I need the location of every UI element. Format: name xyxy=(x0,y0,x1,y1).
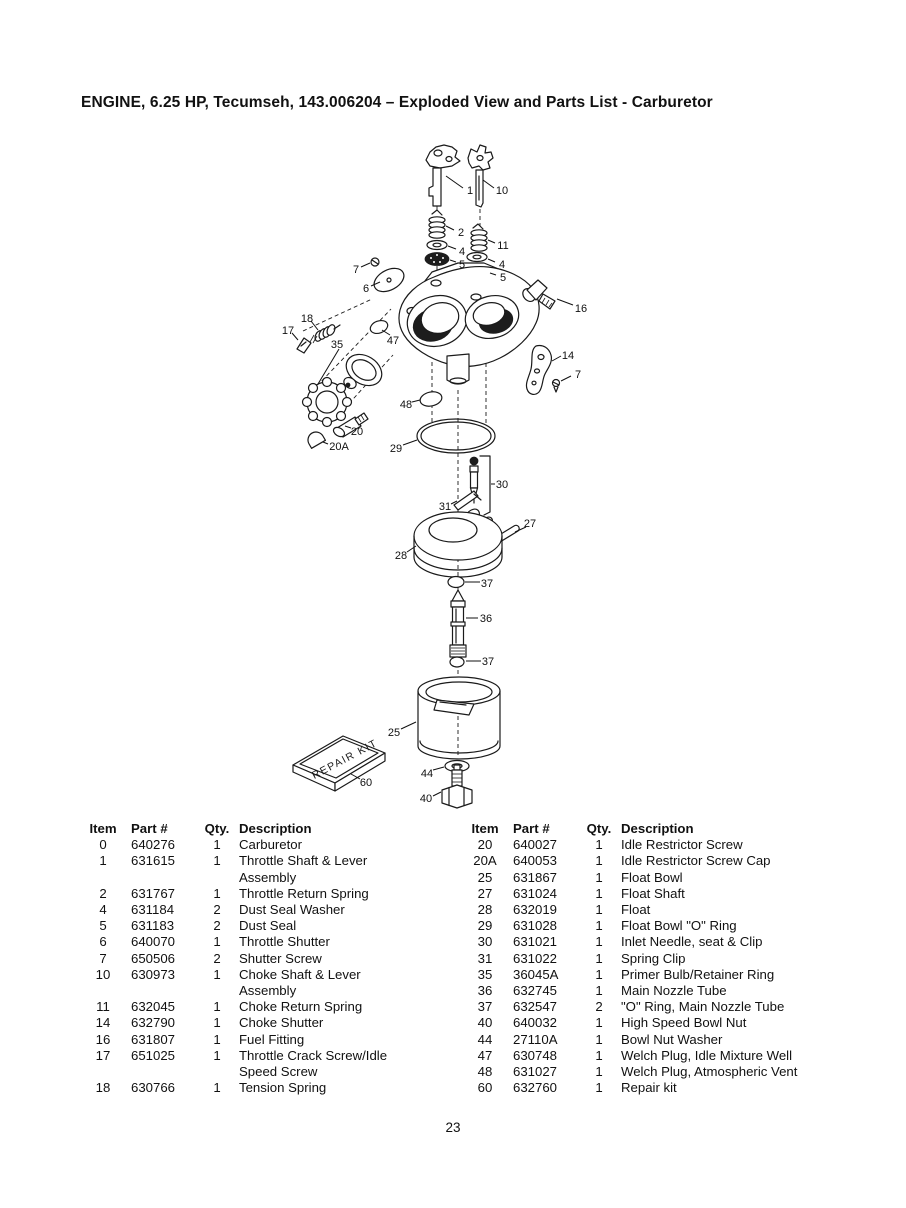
parts-cell-desc: Idle Restrictor Screw xyxy=(619,837,829,853)
parts-cell-desc: Idle Restrictor Screw Cap xyxy=(619,853,829,869)
part-callout-25: 25 xyxy=(388,727,400,739)
parts-cell-part: 36045A xyxy=(507,967,579,983)
part-callout-6: 6 xyxy=(363,283,369,295)
parts-cell-item: 27 xyxy=(463,886,507,902)
part-callout-40: 40 xyxy=(420,793,432,805)
callout-leader-line xyxy=(323,442,328,444)
parts-cell-desc: Tension Spring xyxy=(237,1080,447,1096)
page-title: ENGINE, 6.25 HP, Tecumseh, 143.006204 – … xyxy=(81,94,841,112)
parts-cell-desc: Throttle Shaft & Lever Assembly xyxy=(237,853,447,885)
parts-table-right: Item Part # Qty. Description 206400271Id… xyxy=(463,821,829,1096)
callout-leader-line xyxy=(561,376,571,381)
float-bowl-o-ring-drawing xyxy=(417,419,495,453)
page-number: 23 xyxy=(0,1120,906,1135)
parts-cell-item: 20A xyxy=(463,853,507,869)
parts-cell-qty: 1 xyxy=(579,1048,619,1064)
parts-table-row: 76505062Shutter Screw xyxy=(81,951,447,967)
header-qty: Qty. xyxy=(197,821,237,837)
callout-leader-line xyxy=(488,240,495,243)
parts-cell-qty: 2 xyxy=(197,918,237,934)
parts-cell-desc: High Speed Bowl Nut xyxy=(619,1015,829,1031)
parts-cell-part: 632790 xyxy=(125,1015,197,1031)
parts-table-row: 256318671Float Bowl xyxy=(463,870,829,886)
part-callout-28: 28 xyxy=(395,550,407,562)
parts-cell-qty: 1 xyxy=(197,1080,237,1096)
parts-cell-item: 31 xyxy=(463,951,507,967)
throttle-return-spring-drawing xyxy=(429,210,445,238)
parts-cell-desc: Throttle Return Spring xyxy=(237,886,447,902)
parts-cell-qty: 1 xyxy=(197,1048,237,1080)
parts-cell-desc: Choke Shutter xyxy=(237,1015,447,1031)
part-callout-29: 29 xyxy=(390,443,402,455)
choke-shaft-lever-drawing xyxy=(468,145,493,207)
part-callout-47: 47 xyxy=(387,335,399,347)
parts-table-row: 16316151Throttle Shaft & Lever Assembly xyxy=(81,853,447,885)
choke-shutter-drawing xyxy=(526,345,551,394)
callout-leader-line xyxy=(446,176,463,188)
parts-cell-desc: Choke Shaft & Lever Assembly xyxy=(237,967,447,999)
parts-cell-qty: 1 xyxy=(579,918,619,934)
parts-cell-item: 10 xyxy=(81,967,125,999)
parts-cell-part: 631028 xyxy=(507,918,579,934)
part-callout-35: 35 xyxy=(331,339,343,351)
parts-table-row: 286320191Float xyxy=(463,902,829,918)
spring-clip-drawing xyxy=(454,491,481,510)
parts-table-row: 106309731Choke Shaft & Lever Assembly xyxy=(81,967,447,999)
part-callout-18: 18 xyxy=(301,313,313,325)
parts-cell-qty: 2 xyxy=(197,951,237,967)
header-description: Description xyxy=(237,821,447,837)
shutter-screw-left-drawing xyxy=(371,258,379,266)
dust-seal-washer-left-drawing xyxy=(427,241,447,250)
parts-cell-qty: 1 xyxy=(579,870,619,886)
header-part: Part # xyxy=(507,821,579,837)
parts-cell-part: 631767 xyxy=(125,886,197,902)
callout-leader-line xyxy=(557,299,573,305)
parts-table-row: 26317671Throttle Return Spring xyxy=(81,886,447,902)
primer-bulb-retainer-drawing xyxy=(303,348,388,426)
parts-cell-part: 631807 xyxy=(125,1032,197,1048)
parts-cell-part: 631022 xyxy=(507,951,579,967)
part-callout-14: 14 xyxy=(562,350,574,362)
parts-table-row: 476307481Welch Plug, Idle Mixture Well xyxy=(463,1048,829,1064)
part-callout-31: 31 xyxy=(439,501,451,513)
parts-cell-qty: 1 xyxy=(197,837,237,853)
manual-page: ENGINE, 6.25 HP, Tecumseh, 143.006204 – … xyxy=(0,0,906,1208)
main-nozzle-tube-drawing xyxy=(450,590,466,657)
parts-cell-qty: 1 xyxy=(197,967,237,999)
parts-cell-part: 650506 xyxy=(125,951,197,967)
callout-leader-line xyxy=(552,356,561,361)
parts-cell-qty: 1 xyxy=(579,886,619,902)
part-callout-27: 27 xyxy=(524,518,536,530)
parts-cell-qty: 1 xyxy=(579,934,619,950)
parts-table-row: 176510251Throttle Crack Screw/Idle Speed… xyxy=(81,1048,447,1080)
parts-cell-part: 630748 xyxy=(507,1048,579,1064)
parts-cell-desc: Float Bowl "O" Ring xyxy=(619,918,829,934)
callout-leader-line xyxy=(361,263,370,267)
parts-cell-item: 60 xyxy=(463,1080,507,1096)
parts-cell-desc: Float Shaft xyxy=(619,886,829,902)
parts-cell-item: 17 xyxy=(81,1048,125,1080)
parts-table-row: 366327451Main Nozzle Tube xyxy=(463,983,829,999)
parts-cell-part: 631615 xyxy=(125,853,197,885)
parts-cell-desc: Inlet Needle, seat & Clip xyxy=(619,934,829,950)
parts-cell-part: 631867 xyxy=(507,870,579,886)
parts-cell-qty: 1 xyxy=(579,1015,619,1031)
header-qty: Qty. xyxy=(579,821,619,837)
parts-table-row: 66400701Throttle Shutter xyxy=(81,934,447,950)
parts-cell-qty: 1 xyxy=(197,886,237,902)
parts-cell-part: 640070 xyxy=(125,934,197,950)
parts-cell-item: 25 xyxy=(463,870,507,886)
parts-cell-part: 632760 xyxy=(507,1080,579,1096)
callout-leader-line xyxy=(483,180,494,188)
callout-leader-line xyxy=(412,400,420,402)
part-callout-16: 16 xyxy=(575,303,587,315)
parts-cell-qty: 1 xyxy=(197,934,237,950)
parts-cell-qty: 1 xyxy=(579,983,619,999)
parts-table-row: 3536045A1Primer Bulb/Retainer Ring xyxy=(463,967,829,983)
parts-cell-desc: Fuel Fitting xyxy=(237,1032,447,1048)
parts-cell-qty: 2 xyxy=(197,902,237,918)
parts-table-row: 206400271Idle Restrictor Screw xyxy=(463,837,829,853)
parts-cell-desc: Primer Bulb/Retainer Ring xyxy=(619,967,829,983)
callout-leader-line xyxy=(448,246,456,249)
parts-cell-part: 640027 xyxy=(507,837,579,853)
parts-cell-desc: Dust Seal xyxy=(237,918,447,934)
part-callout-44: 44 xyxy=(421,768,433,780)
parts-cell-desc: Throttle Crack Screw/Idle Speed Screw xyxy=(237,1048,447,1080)
parts-cell-part: 27110A xyxy=(507,1032,579,1048)
part-callout-48: 48 xyxy=(400,399,412,411)
parts-cell-item: 20 xyxy=(463,837,507,853)
parts-cell-item: 0 xyxy=(81,837,125,853)
parts-cell-part: 640032 xyxy=(507,1015,579,1031)
callout-leader-line xyxy=(446,226,454,230)
parts-cell-desc: Dust Seal Washer xyxy=(237,902,447,918)
parts-cell-desc: Welch Plug, Idle Mixture Well xyxy=(619,1048,829,1064)
parts-table-row: 06402761Carburetor xyxy=(81,837,447,853)
welch-plug-vent-drawing xyxy=(419,390,443,408)
callout-leader-line xyxy=(450,260,456,262)
parts-table-row: 306310211Inlet Needle, seat & Clip xyxy=(463,934,829,950)
parts-cell-item: 35 xyxy=(463,967,507,983)
parts-cell-qty: 1 xyxy=(197,1032,237,1048)
parts-cell-item: 1 xyxy=(81,853,125,885)
parts-table-row: 4427110A1Bowl Nut Washer xyxy=(463,1032,829,1048)
parts-cell-desc: Carburetor xyxy=(237,837,447,853)
header-description: Description xyxy=(619,821,829,837)
parts-cell-part: 631021 xyxy=(507,934,579,950)
part-callout-37: 37 xyxy=(482,656,494,668)
parts-cell-item: 44 xyxy=(463,1032,507,1048)
choke-return-spring-drawing xyxy=(471,224,487,251)
parts-table-row: 486310271Welch Plug, Atmospheric Vent xyxy=(463,1064,829,1080)
parts-cell-part: 632745 xyxy=(507,983,579,999)
parts-cell-desc: Float Bowl xyxy=(619,870,829,886)
part-callout-20: 20 xyxy=(351,426,363,438)
idle-restrictor-cap-drawing xyxy=(305,429,325,448)
dust-seal-left-drawing xyxy=(425,253,449,266)
header-item: Item xyxy=(463,821,507,837)
callout-leader-line xyxy=(403,440,417,445)
parts-cell-item: 5 xyxy=(81,918,125,934)
parts-cell-item: 16 xyxy=(81,1032,125,1048)
parts-cell-part: 632547 xyxy=(507,999,579,1015)
parts-cell-item: 11 xyxy=(81,999,125,1015)
parts-cell-item: 18 xyxy=(81,1080,125,1096)
parts-cell-desc: Main Nozzle Tube xyxy=(619,983,829,999)
bowl-nut-drawing xyxy=(442,765,472,808)
parts-cell-qty: 1 xyxy=(197,853,237,885)
parts-cell-qty: 2 xyxy=(579,999,619,1015)
carburetor-body-drawing xyxy=(399,263,539,384)
parts-cell-part: 631027 xyxy=(507,1064,579,1080)
part-callout-37: 37 xyxy=(481,578,493,590)
parts-table-row: 406400321High Speed Bowl Nut xyxy=(463,1015,829,1031)
parts-cell-part: 631183 xyxy=(125,918,197,934)
part-callout-10: 10 xyxy=(496,185,508,197)
parts-cell-item: 2 xyxy=(81,886,125,902)
parts-cell-desc: "O" Ring, Main Nozzle Tube xyxy=(619,999,829,1015)
callout-leader-line xyxy=(488,259,495,262)
parts-table-row: 276310241Float Shaft xyxy=(463,886,829,902)
parts-table-row: 296310281Float Bowl "O" Ring xyxy=(463,918,829,934)
part-callout-36: 36 xyxy=(480,613,492,625)
part-callout-60: 60 xyxy=(360,777,372,789)
parts-cell-qty: 1 xyxy=(579,853,619,869)
parts-cell-part: 630766 xyxy=(125,1080,197,1096)
parts-table-left: Item Part # Qty. Description 06402761Car… xyxy=(81,821,447,1096)
parts-cell-part: 631024 xyxy=(507,886,579,902)
nozzle-o-ring-lower-drawing xyxy=(450,657,464,667)
parts-cell-item: 30 xyxy=(463,934,507,950)
parts-table-row: 186307661Tension Spring xyxy=(81,1080,447,1096)
throttle-shaft-lever-drawing xyxy=(426,145,460,206)
parts-cell-part: 651025 xyxy=(125,1048,197,1080)
float-bowl-drawing xyxy=(418,677,500,759)
parts-cell-item: 28 xyxy=(463,902,507,918)
parts-cell-qty: 1 xyxy=(579,902,619,918)
parts-cell-desc: Choke Return Spring xyxy=(237,999,447,1015)
parts-cell-item: 4 xyxy=(81,902,125,918)
parts-cell-qty: 1 xyxy=(579,967,619,983)
parts-cell-desc: Spring Clip xyxy=(619,951,829,967)
parts-table-header: Item Part # Qty. Description xyxy=(463,821,829,837)
part-callout-5: 5 xyxy=(500,272,506,284)
header-item: Item xyxy=(81,821,125,837)
parts-cell-item: 7 xyxy=(81,951,125,967)
parts-cell-item: 29 xyxy=(463,918,507,934)
parts-cell-desc: Welch Plug, Atmospheric Vent xyxy=(619,1064,829,1080)
throttle-shutter-drawing xyxy=(370,264,408,297)
part-callout-7: 7 xyxy=(353,264,359,276)
parts-cell-part: 640053 xyxy=(507,853,579,869)
parts-cell-part: 632045 xyxy=(125,999,197,1015)
parts-cell-item: 48 xyxy=(463,1064,507,1080)
parts-table-row: 146327901Choke Shutter xyxy=(81,1015,447,1031)
parts-cell-desc: Repair kit xyxy=(619,1080,829,1096)
parts-cell-qty: 1 xyxy=(197,1015,237,1031)
parts-cell-part: 640276 xyxy=(125,837,197,853)
parts-table-row: 20A6400531Idle Restrictor Screw Cap xyxy=(463,853,829,869)
parts-cell-qty: 1 xyxy=(197,999,237,1015)
part-callout-11: 11 xyxy=(497,240,508,252)
callout-leader-line xyxy=(433,792,441,796)
parts-cell-desc: Throttle Shutter xyxy=(237,934,447,950)
nozzle-o-ring-upper-drawing xyxy=(448,577,464,588)
parts-cell-item: 40 xyxy=(463,1015,507,1031)
parts-cell-qty: 1 xyxy=(579,837,619,853)
shutter-screw-right-drawing xyxy=(553,380,560,393)
part-callout-17: 17 xyxy=(282,325,294,337)
part-callout-30: 30 xyxy=(496,479,508,491)
part-callout-7: 7 xyxy=(575,369,581,381)
part-callout-2: 2 xyxy=(458,227,464,239)
parts-table-row: 376325472"O" Ring, Main Nozzle Tube xyxy=(463,999,829,1015)
parts-cell-qty: 1 xyxy=(579,1080,619,1096)
parts-cell-item: 14 xyxy=(81,1015,125,1031)
parts-cell-desc: Shutter Screw xyxy=(237,951,447,967)
parts-cell-part: 630973 xyxy=(125,967,197,999)
parts-table-row: 46311842Dust Seal Washer xyxy=(81,902,447,918)
parts-cell-part: 631184 xyxy=(125,902,197,918)
parts-cell-item: 36 xyxy=(463,983,507,999)
part-callout-4: 4 xyxy=(499,259,505,271)
part-callout-20A: 20A xyxy=(329,441,349,453)
part-callout-1: 1 xyxy=(467,185,473,197)
dust-seal-washer-right-drawing xyxy=(467,253,487,262)
exploded-view-diagram: REPAIR KIT 11024511457616147181735474820… xyxy=(270,135,620,820)
parts-table-row: 316310221Spring Clip xyxy=(463,951,829,967)
callout-leader-line xyxy=(433,767,444,770)
inlet-needle-drawing xyxy=(470,456,490,515)
part-callout-5: 5 xyxy=(459,259,465,271)
parts-cell-part: 632019 xyxy=(507,902,579,918)
part-callout-4: 4 xyxy=(459,246,465,258)
parts-table-row: 56311832Dust Seal xyxy=(81,918,447,934)
parts-table-header: Item Part # Qty. Description xyxy=(81,821,447,837)
parts-cell-desc: Float xyxy=(619,902,829,918)
parts-table-row: 116320451Choke Return Spring xyxy=(81,999,447,1015)
parts-cell-qty: 1 xyxy=(579,951,619,967)
parts-cell-qty: 1 xyxy=(579,1032,619,1048)
parts-table-row: 166318071Fuel Fitting xyxy=(81,1032,447,1048)
parts-cell-item: 6 xyxy=(81,934,125,950)
parts-cell-qty: 1 xyxy=(579,1064,619,1080)
header-part: Part # xyxy=(125,821,197,837)
callout-leader-line xyxy=(401,722,416,729)
parts-cell-item: 47 xyxy=(463,1048,507,1064)
parts-table-row: 606327601Repair kit xyxy=(463,1080,829,1096)
parts-cell-item: 37 xyxy=(463,999,507,1015)
parts-cell-desc: Bowl Nut Washer xyxy=(619,1032,829,1048)
